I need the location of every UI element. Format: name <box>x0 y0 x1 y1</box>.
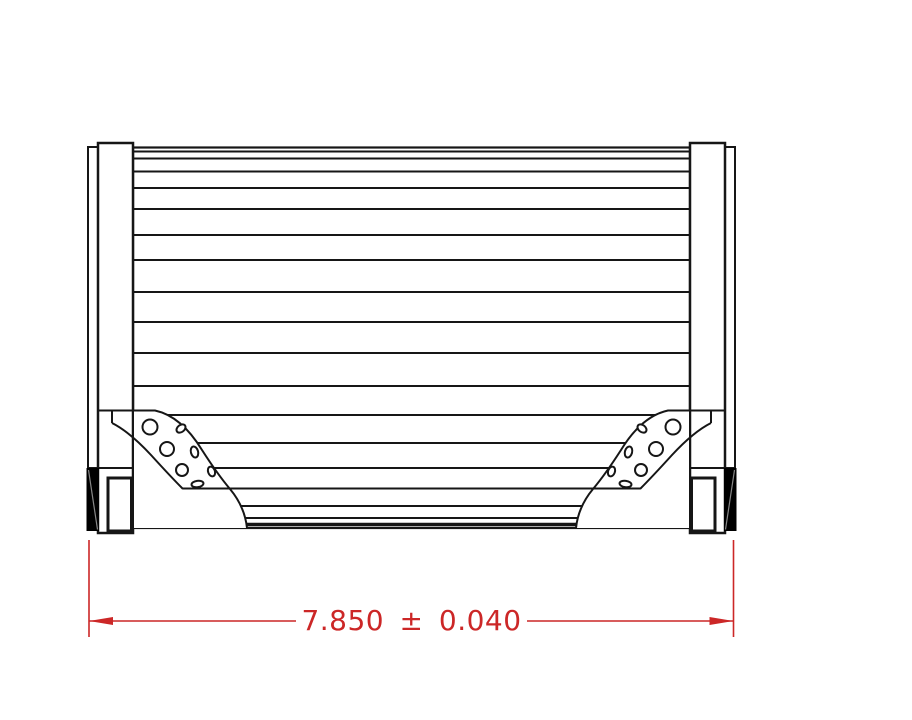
cone-hole-circle <box>160 442 174 456</box>
end-cap <box>98 143 133 533</box>
cone-hole-circle <box>176 464 188 476</box>
filter-side-view-drawing: 7.850 ± 0.040 <box>0 0 912 720</box>
cap-groove <box>108 478 132 531</box>
arrowhead-right-icon <box>710 617 734 625</box>
cone-hole-ellipse <box>191 480 204 488</box>
drawing-canvas: 7.850 ± 0.040 <box>0 0 912 720</box>
arrowhead-left-icon <box>89 617 113 625</box>
dimension-text: 7.850 ± 0.040 <box>301 604 521 637</box>
cone-hole-circle <box>143 420 158 435</box>
dimension-annotation: 7.850 ± 0.040 <box>89 540 734 637</box>
